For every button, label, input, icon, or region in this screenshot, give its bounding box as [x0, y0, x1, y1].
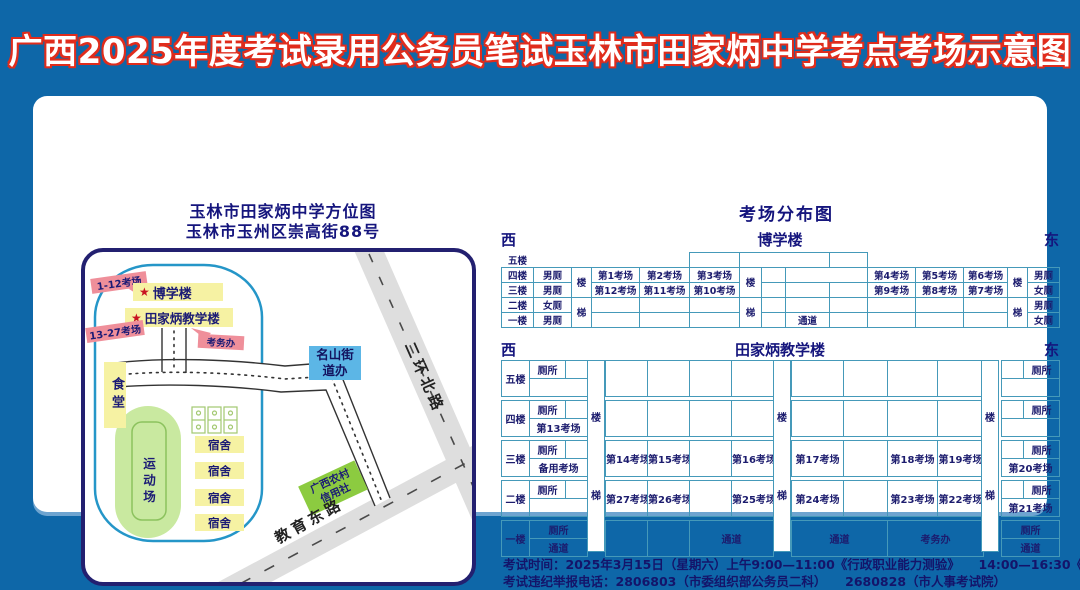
- stair-lower-char: 梯: [982, 487, 998, 502]
- cell-empty: [606, 521, 648, 557]
- cell-empty: [640, 312, 690, 327]
- cell-empty: [690, 297, 740, 312]
- floor-label: 二楼: [502, 297, 534, 312]
- stair-column-west: 楼 梯: [587, 360, 605, 552]
- mingshan-line2: 道办: [309, 363, 361, 379]
- toilet-cell: 厕所: [530, 481, 566, 499]
- room-cell: 第27考场: [606, 481, 648, 517]
- star-icon: ★: [139, 286, 150, 298]
- cell-empty: [888, 401, 938, 437]
- toilet-cell: 男厕: [534, 267, 572, 282]
- stair-lower-char: 梯: [588, 487, 604, 502]
- room-cell: 第19考场: [938, 441, 984, 477]
- report-phone-line: 考试违纪举报电话：2806803（市委组织部公务员二科） 2680828（市人事…: [503, 573, 1075, 590]
- cell-empty: [690, 312, 740, 327]
- cell-empty: [690, 253, 740, 268]
- cell-empty: [786, 282, 830, 297]
- floor-label: 五楼: [502, 253, 534, 268]
- tianjiabing-header: 西 田家炳教学楼 东: [501, 339, 1059, 360]
- stair-cell: 楼: [740, 267, 762, 297]
- toilet-cell: 男厕: [1028, 297, 1060, 312]
- stair-column-center: 楼 梯: [773, 360, 791, 552]
- west-label: 西: [501, 229, 516, 250]
- cell-empty: [844, 481, 888, 517]
- cell-empty: [888, 361, 938, 397]
- stair-cell: 梯: [572, 297, 592, 327]
- room-cell: 第20考场: [1002, 459, 1060, 477]
- cell-empty: [566, 361, 588, 379]
- cell-empty: [844, 361, 888, 397]
- poster-root: { "page_title": "广西2025年度考试录用公务员笔试玉林市田家炳…: [0, 0, 1080, 540]
- toilet-cell: 厕所: [530, 361, 566, 379]
- cell-empty: [1002, 379, 1060, 397]
- cell-empty: [868, 253, 1060, 268]
- page-title: 广西2025年度考试录用公务员笔试玉林市田家炳中学考点考场示意图: [0, 24, 1080, 73]
- cell-empty: [606, 361, 648, 397]
- toilet-cell: 厕所: [1024, 401, 1060, 419]
- dorm-label: 宿舍: [195, 514, 244, 531]
- cell-empty: [640, 297, 690, 312]
- cell-empty: [648, 361, 690, 397]
- distribution-title: 考场分布图: [493, 200, 1080, 225]
- floor-label: 四楼: [502, 267, 534, 282]
- stair-upper-char: 楼: [588, 409, 604, 424]
- toilet-cell: 女厕: [534, 297, 572, 312]
- exam-info: 考试时间：2025年3月15日（星期六）上午9:00—11:00《行政职业能力测…: [503, 556, 1075, 590]
- cell-empty: [592, 297, 640, 312]
- room-cell: 第18考场: [888, 441, 938, 477]
- toilet-cell: 女厕: [1028, 282, 1060, 297]
- cell-empty: [1002, 441, 1024, 459]
- cell-empty: [916, 297, 964, 312]
- sports-ground-label: 运动场: [140, 446, 158, 518]
- aisle-cell: 通道: [530, 539, 588, 557]
- map-title: 玉林市田家炳中学方位图 玉林市玉州区崇高街88号: [73, 202, 493, 242]
- cell-empty: [868, 312, 916, 327]
- aisle-cell: 通道: [690, 521, 774, 557]
- cell-empty: [830, 253, 868, 268]
- cell-empty: [844, 401, 888, 437]
- dorm-label: 宿舍: [195, 489, 244, 506]
- bx-floor2-row: 二楼 女厕 梯 梯 梯 男厕: [502, 297, 1060, 312]
- room-cell: 备用考场: [530, 459, 588, 477]
- cell-empty: [830, 312, 868, 327]
- boxue-floor-table: 五楼 四楼 男厕 楼 第1考场 第2考场 第3考场 楼 第4考场 第5考场 第6…: [501, 252, 1060, 328]
- exam-time-line: 考试时间：2025年3月15日（星期六）上午9:00—11:00《行政职业能力测…: [503, 556, 1075, 573]
- boxue-header: 西 博学楼 东: [501, 229, 1059, 250]
- floor-label: 三楼: [502, 282, 534, 297]
- room-cell: 第10考场: [690, 282, 740, 297]
- room-cell: 第15考场: [648, 441, 690, 477]
- stair-lower-char: 梯: [774, 487, 790, 502]
- cell-empty: [964, 312, 1008, 327]
- room-cell: 第7考场: [964, 282, 1008, 297]
- cell-empty: [1002, 401, 1024, 419]
- toilet-cell: 厕所: [1024, 441, 1060, 459]
- cell-empty: [1002, 481, 1024, 499]
- map-title-line2: 玉林市玉州区崇高街88号: [73, 222, 493, 242]
- toilet-cell: 厕所: [1024, 361, 1060, 379]
- aisle-cell: 通道: [792, 521, 888, 557]
- cell-empty: [592, 312, 640, 327]
- room-cell: 第4考场: [868, 267, 916, 282]
- aisle-cell: 通道: [1002, 539, 1060, 557]
- room-cell: 第5考场: [916, 267, 964, 282]
- room-cell: 第12考场: [592, 282, 640, 297]
- room-cell: 第11考场: [640, 282, 690, 297]
- room-cell: 第16考场: [732, 441, 774, 477]
- floor-label: 四楼: [502, 401, 530, 437]
- room-cell: 第3考场: [690, 267, 740, 282]
- cell-empty: [740, 253, 830, 268]
- cell-empty: [938, 361, 984, 397]
- east-label: 东: [1044, 229, 1059, 250]
- cell-empty: [648, 401, 690, 437]
- floor-label: 一楼: [502, 312, 534, 327]
- aisle-cell: 通道: [786, 312, 830, 327]
- cell-empty: [566, 441, 588, 459]
- stair-cell: 楼: [572, 267, 592, 297]
- cell-empty: [534, 253, 690, 268]
- cell-empty: [868, 297, 916, 312]
- west-label: 西: [501, 339, 516, 360]
- toilet-cell: 厕所: [1002, 521, 1060, 539]
- room-cell: 第2考场: [640, 267, 690, 282]
- toilet-cell: 厕所: [530, 441, 566, 459]
- cell-empty: [1002, 419, 1060, 437]
- toilet-cell: 男厕: [534, 282, 572, 297]
- floor-label: 五楼: [502, 361, 530, 397]
- cell-empty: [530, 379, 588, 397]
- floor-label: 一楼: [502, 521, 530, 557]
- stair-upper-char: 楼: [774, 409, 790, 424]
- mingshan-line1: 名山街: [309, 347, 361, 363]
- cell-empty: [648, 521, 690, 557]
- stair-cell: 梯: [1008, 297, 1028, 327]
- room-cell: 第26考场: [648, 481, 690, 517]
- content-panel: 玉林市田家炳中学方位图 玉林市玉州区崇高街88号: [33, 96, 1047, 512]
- stair-cell: 楼: [1008, 267, 1028, 297]
- cell-empty: [566, 481, 588, 499]
- mingshan-office-label: 名山街 道办: [309, 346, 361, 380]
- room-cell: 第9考场: [868, 282, 916, 297]
- cell-empty: [732, 361, 774, 397]
- cell-empty: [830, 282, 868, 297]
- stair-cell: 梯: [740, 297, 762, 327]
- room-cell: 第14考场: [606, 441, 648, 477]
- dorm-label: 宿舍: [195, 436, 244, 453]
- room-cell: 第24考场: [792, 481, 844, 517]
- toilet-cell: 厕所: [530, 521, 588, 539]
- cell-empty: [830, 297, 868, 312]
- room-cell: 第25考场: [732, 481, 774, 517]
- room-cell: 第23考场: [888, 481, 938, 517]
- cell-empty: [762, 267, 786, 282]
- bx-floor5-row: 五楼: [502, 253, 1060, 268]
- cell-empty: [792, 361, 844, 397]
- cell-empty: [566, 401, 588, 419]
- cell-empty: [690, 481, 732, 517]
- cell-empty: [762, 297, 786, 312]
- floor-label: 三楼: [502, 441, 530, 477]
- room-cell: 第22考场: [938, 481, 984, 517]
- stair-column-east: 楼 梯: [981, 360, 999, 552]
- bx-floor4-row: 四楼 男厕 楼 第1考场 第2考场 第3考场 楼 第4考场 第5考场 第6考场 …: [502, 267, 1060, 282]
- tianjiabing-building-name: 田家炳教学楼: [735, 339, 825, 360]
- cell-empty: [690, 401, 732, 437]
- toilet-cell: 男厕: [534, 312, 572, 327]
- canteen-label: 食堂: [104, 362, 126, 428]
- cell-empty: [690, 441, 732, 477]
- cell-empty: [938, 401, 984, 437]
- building-boxue-label: ★ 博学楼: [133, 283, 223, 301]
- cell-empty: [916, 312, 964, 327]
- room-cell: 第13考场: [530, 419, 588, 437]
- tianjiabing-name: 田家炳教学楼: [145, 308, 220, 327]
- cell-empty: [606, 401, 648, 437]
- boxue-name: 博学楼: [153, 283, 192, 302]
- toilet-cell: 女厕: [1028, 312, 1060, 327]
- floor-label: 二楼: [502, 481, 530, 517]
- room-cell: 第1考场: [592, 267, 640, 282]
- cell-empty: [530, 499, 588, 517]
- toilet-cell: 厕所: [530, 401, 566, 419]
- cell-empty: [792, 401, 844, 437]
- east-label: 东: [1044, 339, 1059, 360]
- cell-empty: [964, 297, 1008, 312]
- dorm-label: 宿舍: [195, 462, 244, 479]
- exam-office-cell: 考务办: [888, 521, 984, 557]
- cell-empty: [844, 441, 888, 477]
- stair-upper-char: 楼: [982, 409, 998, 424]
- cell-empty: [786, 297, 830, 312]
- tianjiabing-floor-table: 五楼 厕所 厕所: [501, 360, 1059, 552]
- cell-empty: [732, 401, 774, 437]
- cell-empty: [762, 282, 786, 297]
- cell-empty: [1002, 361, 1024, 379]
- cell-empty: [690, 361, 732, 397]
- boxue-building-name: 博学楼: [757, 229, 802, 250]
- toilet-cell: 厕所: [1024, 481, 1060, 499]
- toilet-cell: 男厕: [1028, 267, 1060, 282]
- room-cell: 第8考场: [916, 282, 964, 297]
- room-cell: 第17考场: [792, 441, 844, 477]
- cell-empty: [786, 267, 868, 282]
- tag-kaowuban: 考务办: [198, 334, 245, 350]
- cell-empty: [762, 312, 786, 327]
- map-title-line1: 玉林市田家炳中学方位图: [73, 202, 493, 222]
- room-cell: 第21考场: [1002, 499, 1060, 517]
- campus-map: 1-12考场 ★ 博学楼 ★ 田家炳教学楼 13-27考场 考务办 名山街 道办…: [81, 248, 476, 586]
- basketball-courts: [192, 407, 237, 433]
- room-cell: 第6考场: [964, 267, 1008, 282]
